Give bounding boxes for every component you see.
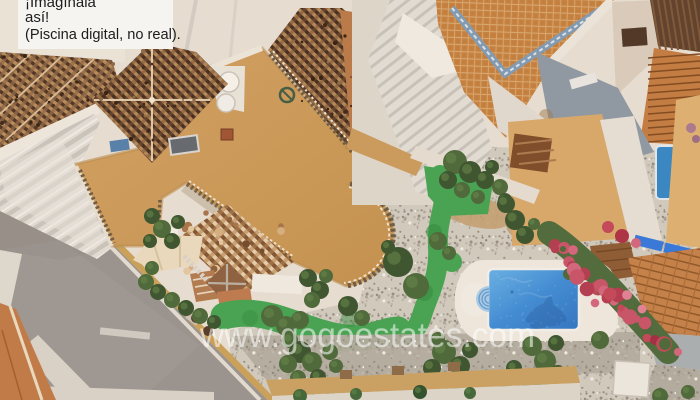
svg-text:(Piscina digital, no real).: (Piscina digital, no real). bbox=[25, 27, 181, 43]
svg-text:así!: así! bbox=[25, 9, 49, 26]
svg-text:www.gogoestates.com: www.gogoestates.com bbox=[199, 316, 535, 355]
